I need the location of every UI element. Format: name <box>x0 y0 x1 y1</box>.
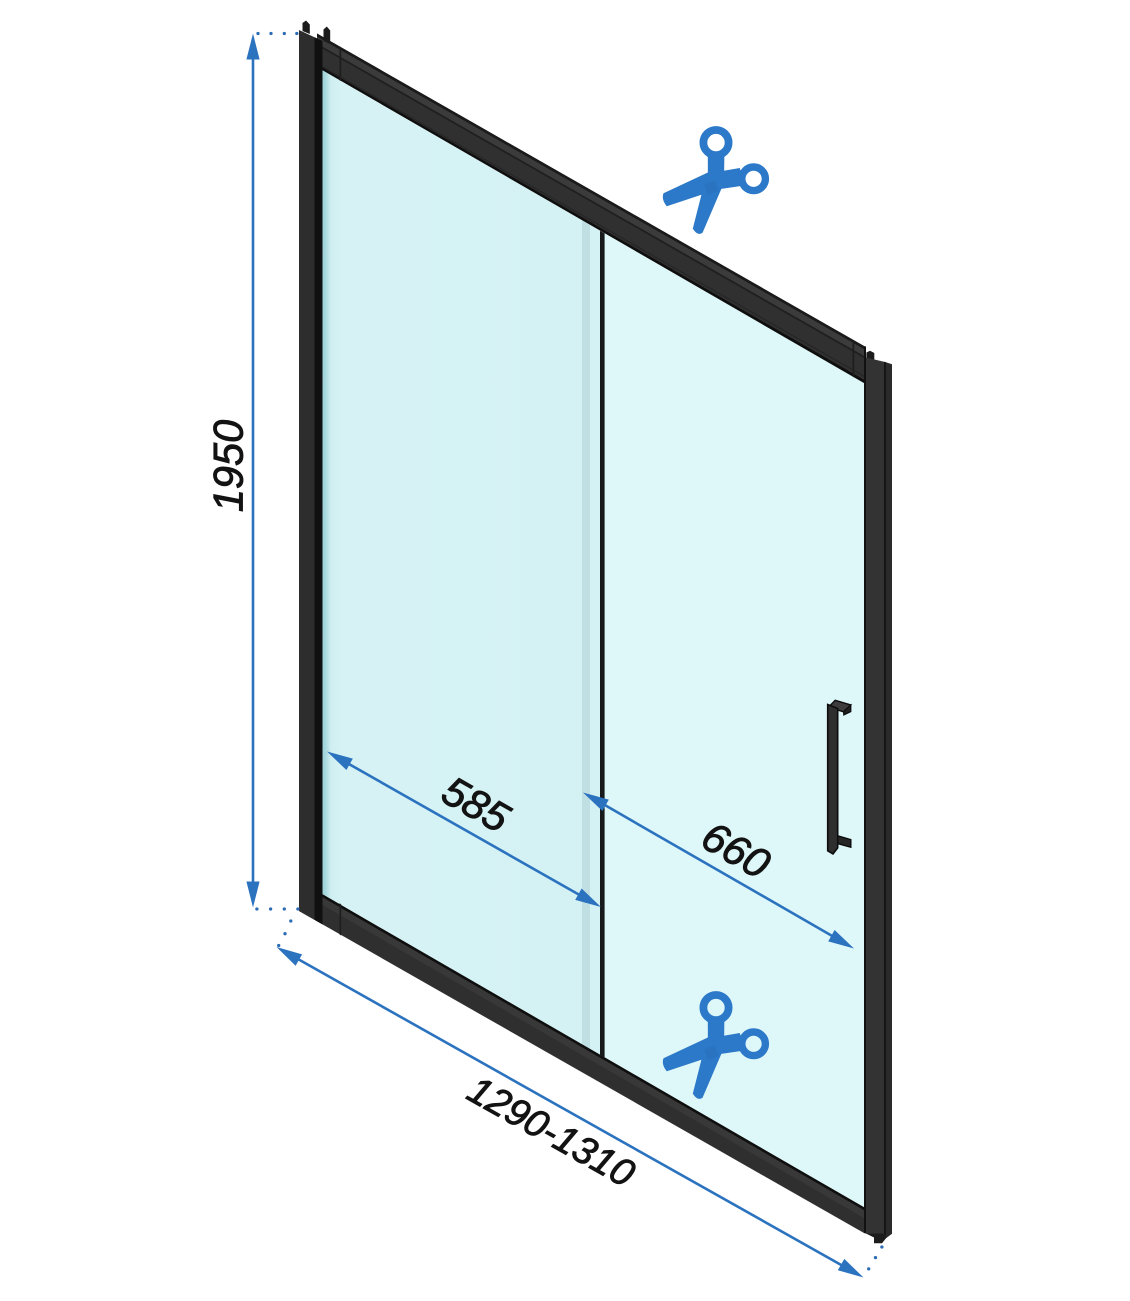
svg-text:1950: 1950 <box>205 420 252 512</box>
